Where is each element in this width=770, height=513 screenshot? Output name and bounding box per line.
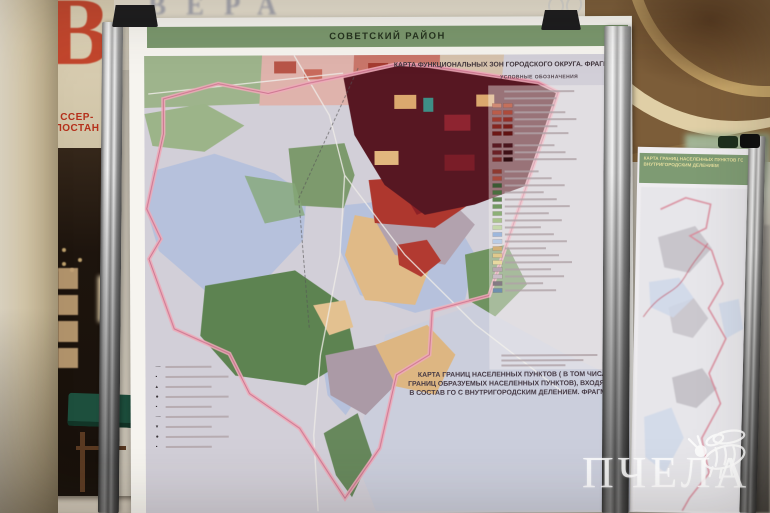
- mini-legend-symbol: ▾: [156, 423, 166, 429]
- legend-swatch: [493, 211, 502, 215]
- legend-row: [492, 88, 614, 95]
- watermark-text: ПЧЕЛА: [582, 451, 750, 495]
- mini-legend-row: —: [156, 412, 256, 421]
- legend-row: [493, 210, 615, 217]
- legend-label-bar: [515, 158, 577, 160]
- legend-row: [493, 259, 615, 266]
- legend-row: [493, 217, 615, 224]
- legend-swatch: [493, 190, 502, 194]
- legend-label-bar: [505, 184, 565, 186]
- legend-swatch: [493, 218, 502, 222]
- lattice-cell: [58, 268, 78, 289]
- watermark: ПЧЕЛА: [575, 423, 770, 513]
- legend-label-bar: [505, 198, 557, 200]
- legend-label-bar: [505, 268, 551, 270]
- legend-label-bar: [504, 90, 574, 92]
- footnote-line: [501, 359, 583, 361]
- legend-row: [493, 189, 615, 196]
- binder-clip-icon: [541, 10, 581, 30]
- legend-row: [493, 231, 615, 238]
- legend-row: [493, 203, 615, 210]
- mini-legend: —▪▴●▪—▾●▪: [155, 362, 255, 452]
- legend-label-bar: [505, 191, 544, 193]
- lattice-cell: [58, 348, 78, 369]
- legend-row: [492, 130, 614, 137]
- legend-label-bar: [166, 435, 229, 437]
- legend-label-bar: [505, 233, 554, 235]
- boundaries-caption: КАРТА ГРАНИЦ НАСЕЛЕННЫХ ПУНКТОВ ( В ТОМ …: [401, 371, 627, 398]
- legend-label-bar: [505, 170, 539, 172]
- mini-legend-symbol: ▪: [155, 373, 165, 379]
- secondary-title-line: ВНУТРИГОРОДСКИМ ДЕЛЕНИЕМ: [643, 162, 742, 170]
- legend-swatch: [503, 143, 512, 147]
- legend-row: [493, 287, 615, 294]
- legend-label-bar: [505, 254, 559, 256]
- mini-legend-row: ▪: [155, 372, 255, 381]
- legend-swatch: [493, 260, 502, 264]
- legend-swatch: [504, 150, 513, 154]
- legend-label-bar: [514, 111, 565, 113]
- lattice-cell: [58, 321, 78, 342]
- legend-label-bar: [514, 144, 554, 146]
- legend-swatch: [492, 143, 501, 147]
- legend-swatch: [493, 239, 502, 243]
- legend-swatch: [493, 288, 502, 292]
- legend-row: [493, 196, 615, 203]
- stand-pole-left: [98, 22, 123, 513]
- legend-label-bar: [505, 275, 564, 277]
- mini-legend-row: —: [155, 362, 255, 371]
- legend-row: [493, 156, 615, 163]
- legend-row: [493, 273, 615, 280]
- binder-clip-icon: [718, 132, 762, 152]
- legend-row: [492, 116, 614, 123]
- legend-label-bar: [166, 395, 229, 397]
- legend-label-bar: [505, 282, 543, 284]
- legend-row: [492, 95, 614, 102]
- mini-legend-row: ▴: [156, 382, 256, 391]
- mini-legend-symbol: ▴: [156, 383, 166, 389]
- legend-swatch: [493, 246, 502, 250]
- legend-row: [492, 149, 614, 156]
- legend-swatch: [503, 103, 512, 107]
- legend-label-bar: [166, 405, 212, 407]
- legend-row: [493, 252, 615, 259]
- legend-label-bar: [166, 415, 229, 417]
- legend-swatch: [493, 157, 502, 161]
- legend-swatch: [493, 253, 502, 257]
- legend-label-bar: [165, 365, 211, 367]
- legend-swatch: [504, 157, 513, 161]
- legend-label-bar: [165, 375, 228, 377]
- secondary-header-bar: КАРТА ГРАНИЦ НАСЕЛЕННЫХ ПУНКТОВ ГО С ВНУ…: [639, 153, 756, 185]
- mini-legend-symbol: ●: [156, 393, 166, 399]
- legend-swatch: [503, 110, 512, 114]
- legend-swatch: [493, 176, 502, 180]
- ceiling-shadow: [610, 0, 770, 90]
- legend-row: [493, 280, 615, 287]
- footnote-line: [501, 354, 597, 356]
- legend-swatch: [493, 183, 502, 187]
- legend-row: [493, 245, 615, 252]
- legend-swatch: [503, 124, 512, 128]
- caption-line: ГРАНИЦ ОБРАЗУЕМЫХ НАСЕЛЕННЫХ ПУНКТОВ), В…: [402, 380, 628, 390]
- mini-legend-row: ●: [156, 432, 256, 441]
- legend-row: [492, 142, 614, 149]
- legend-swatch: [503, 131, 512, 135]
- legend-row: [492, 123, 614, 130]
- legend-row: [493, 175, 615, 182]
- district-title: СОВЕТСКИЙ РАЙОН: [329, 31, 445, 43]
- legend-swatch: [493, 281, 502, 285]
- legend-title: УСЛОВНЫЕ ОБОЗНАЧЕНИЯ: [474, 74, 604, 81]
- photo-of-map-exhibit: ВЕРА В ССЕР-ПОСТАН СОВЕТСКИЙ Р: [0, 0, 770, 513]
- legend-label-bar: [515, 151, 566, 153]
- binder-clip-icon: [112, 5, 158, 27]
- legend-label-bar: [514, 104, 554, 106]
- legend-row: [492, 109, 614, 116]
- mini-legend-row: ▪: [156, 402, 256, 411]
- mini-legend-row: ▪: [156, 442, 256, 451]
- mini-legend-symbol: —: [156, 413, 166, 419]
- legend-row: [493, 224, 615, 231]
- legend-footnote: [501, 354, 611, 369]
- mini-legend-symbol: ▪: [156, 403, 166, 409]
- legend-rows: [488, 85, 619, 370]
- mini-legend-symbol: —: [155, 363, 165, 369]
- legend-swatch: [503, 117, 512, 121]
- legend-swatch: [493, 225, 502, 229]
- legend-label-bar: [166, 385, 212, 387]
- legend-swatch: [493, 232, 502, 236]
- mini-legend-symbol: ●: [156, 433, 166, 439]
- legend-label-bar: [505, 247, 546, 249]
- legend-label-bar: [504, 97, 556, 99]
- legend-label-bar: [514, 132, 568, 134]
- legend-swatch: [492, 131, 501, 135]
- legend-label-bar: [505, 289, 556, 291]
- marble-column: [0, 0, 58, 513]
- main-map-board: СОВЕТСКИЙ РАЙОН: [129, 16, 634, 513]
- legend-swatch: [493, 274, 502, 278]
- legend-label-bar: [505, 219, 562, 221]
- legend-swatch: [493, 267, 502, 271]
- legend-swatch: [492, 124, 501, 128]
- legend-label-bar: [505, 261, 572, 263]
- legend-row: [493, 168, 615, 175]
- legend-swatch: [492, 117, 501, 121]
- legend-swatch: [493, 169, 502, 173]
- map-sheet: КАРТА ФУНКЦИОНАЛЬНЫХ ЗОН ГОРОДСКОГО ОКРУ…: [144, 54, 630, 513]
- mini-legend-symbol: ▪: [156, 443, 166, 449]
- mini-legend-row: ▾: [156, 422, 256, 431]
- legend-label-bar: [505, 205, 570, 207]
- legend-swatch: [492, 110, 501, 114]
- legend-swatch: [493, 204, 502, 208]
- legend-label-bar: [505, 240, 567, 242]
- legend-label-bar: [514, 125, 557, 127]
- legend-label-bar: [505, 177, 552, 179]
- legend-label-bar: [166, 425, 212, 427]
- legend-row: [492, 102, 614, 109]
- legend-label-bar: [166, 445, 212, 447]
- mini-legend-row: ●: [156, 392, 256, 401]
- legend-label-bar: [505, 212, 549, 214]
- legend-swatch: [493, 150, 502, 154]
- legend-label-bar: [505, 226, 541, 228]
- legend-label-bar: [514, 118, 576, 120]
- legend-swatch: [492, 103, 501, 107]
- lattice-cell: [58, 295, 78, 316]
- legend-row: [493, 238, 615, 245]
- map-title: КАРТА ФУНКЦИОНАЛЬНЫХ ЗОН ГОРОДСКОГО ОКРУ…: [390, 61, 626, 70]
- legend-row: [493, 182, 615, 189]
- footnote-line: [501, 364, 565, 366]
- legend-swatch: [493, 197, 502, 201]
- caption-line: В СОСТАВ ГО С ВНУТРИГОРОДСКИМ ДЕЛЕНИЕМ. …: [402, 389, 628, 399]
- legend-row: [493, 266, 615, 273]
